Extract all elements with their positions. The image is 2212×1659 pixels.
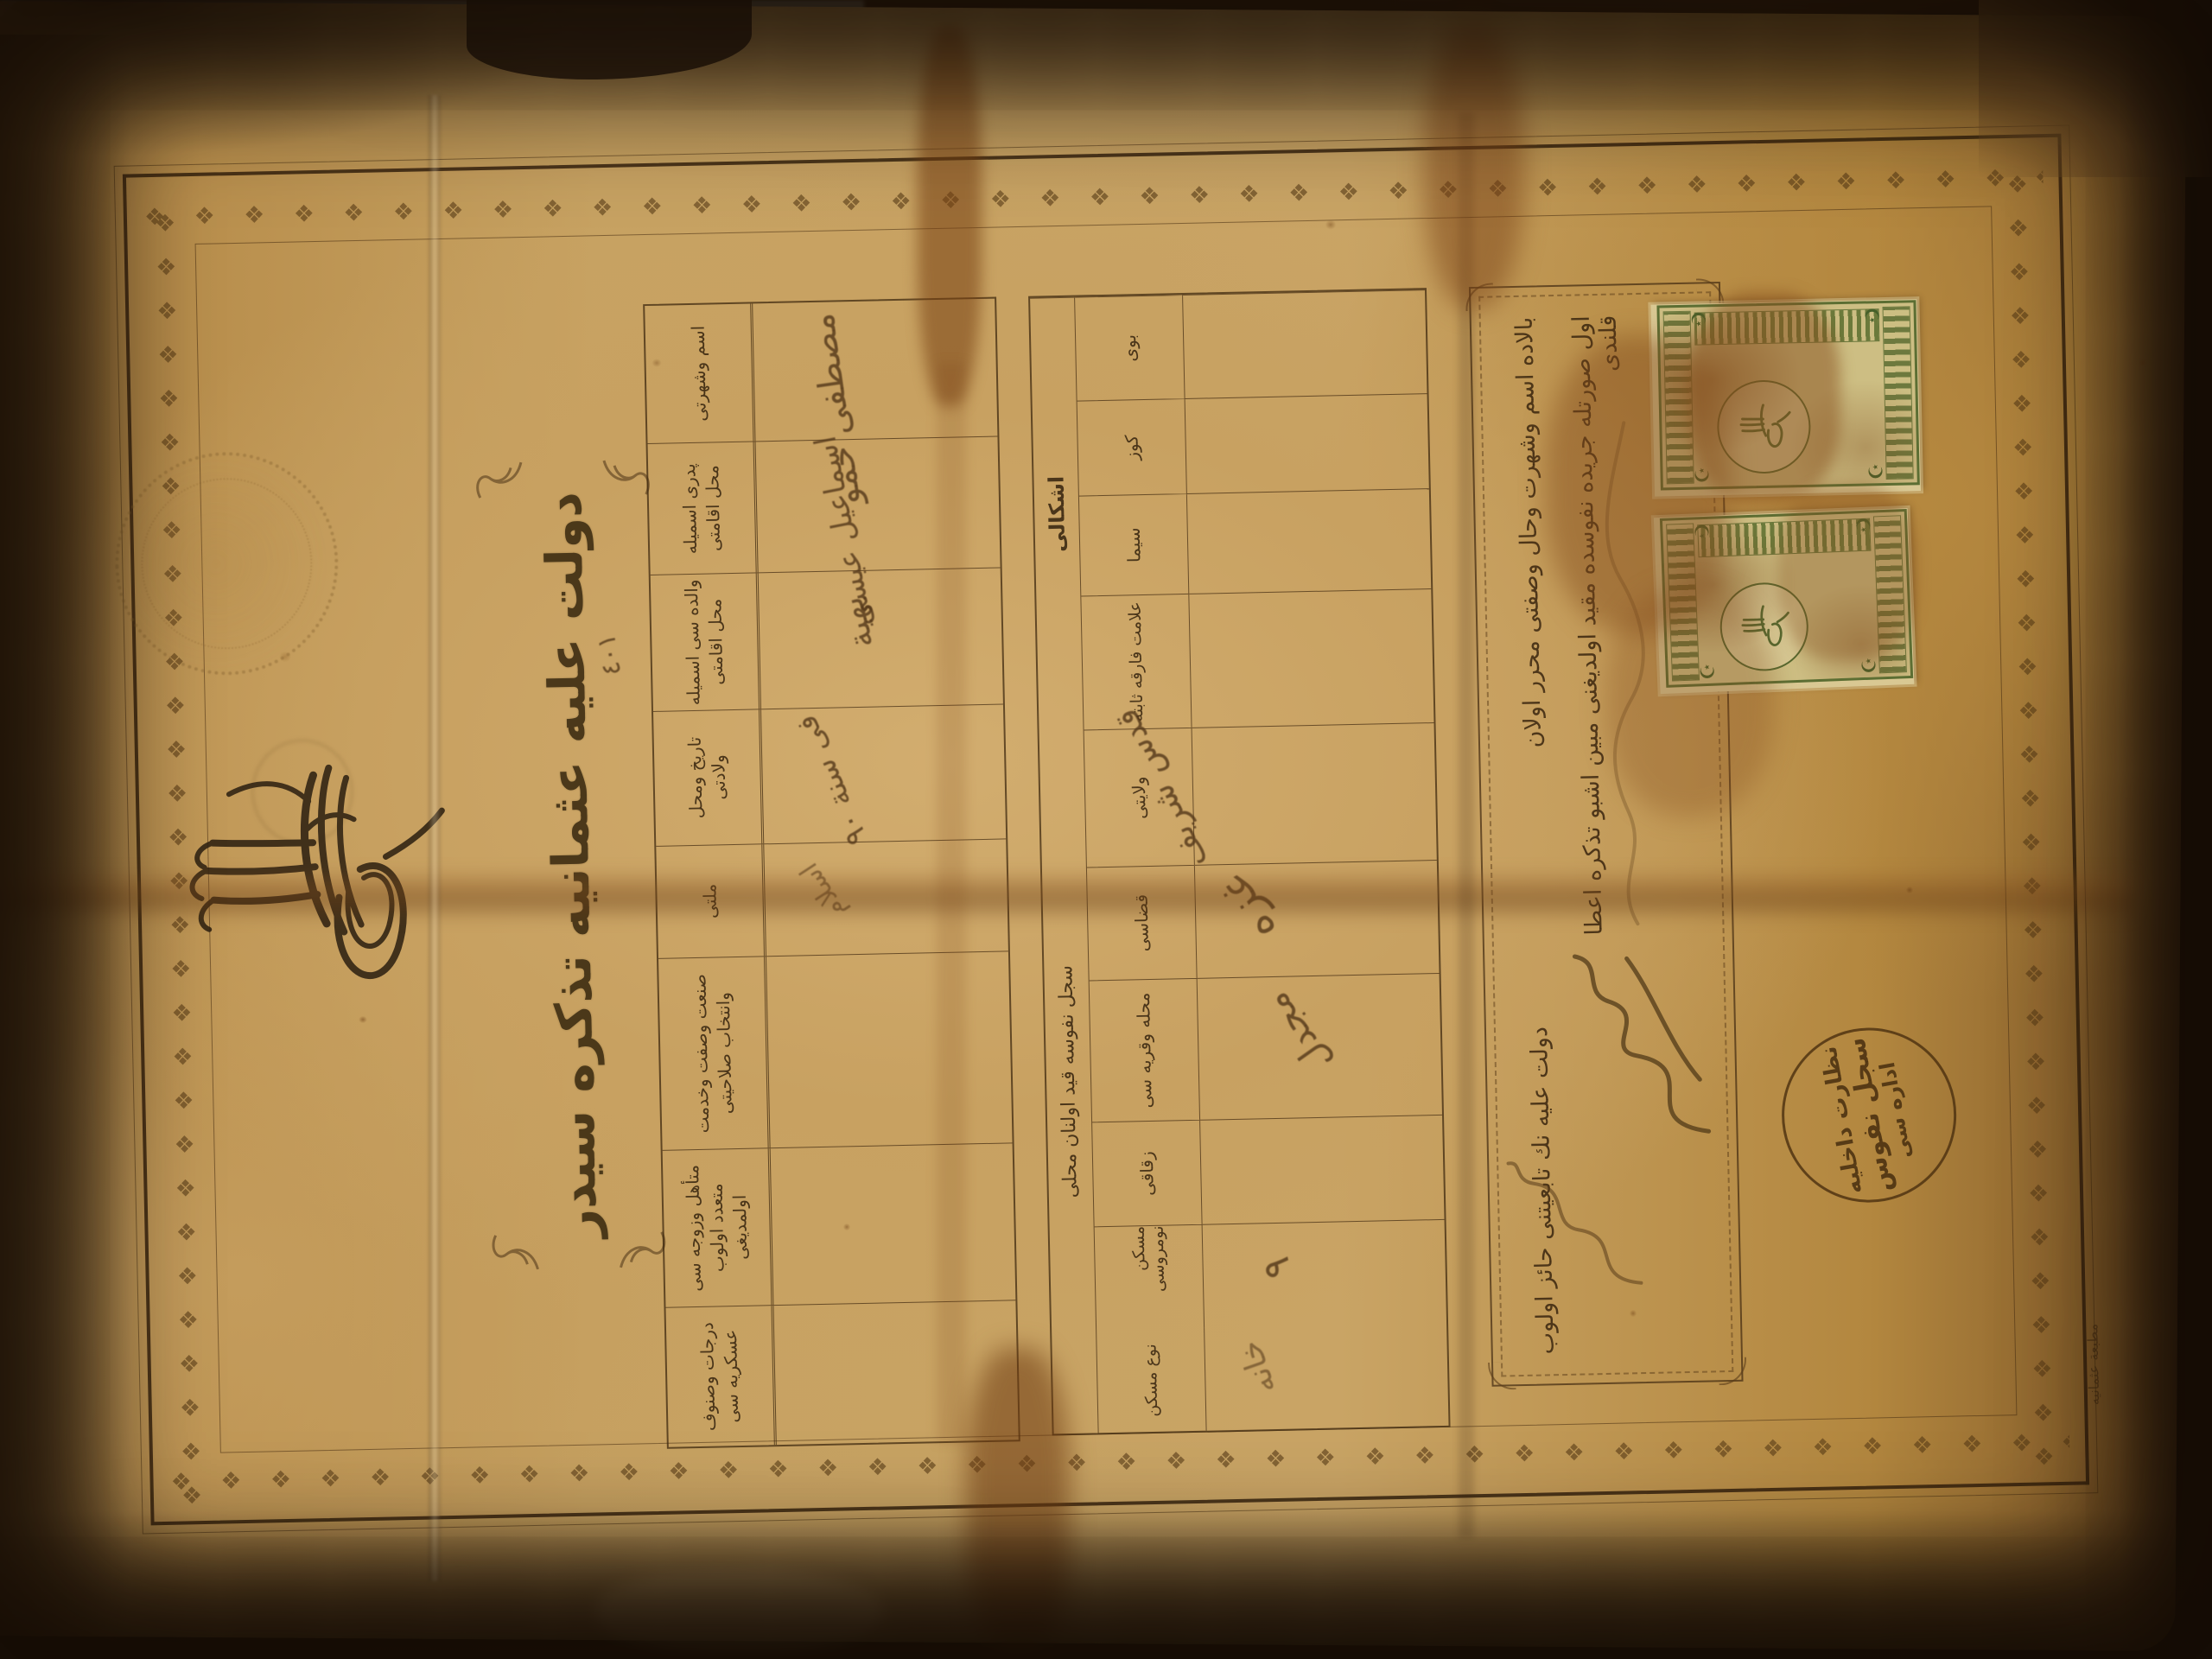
column-header: پدرى اسميله محل اقامتى xyxy=(648,442,759,575)
column-header: زقاقى xyxy=(1092,1120,1202,1226)
column-header: درجات وصنوف عسكريه سى xyxy=(665,1306,776,1447)
table-column: اسم وشهرتى مصطفى حمو xyxy=(645,299,997,444)
handwritten-entry: مجدل xyxy=(1255,984,1340,1081)
handwritten-entry: ٩ xyxy=(1254,1253,1301,1283)
column-value-cell: غزه xyxy=(1195,860,1440,977)
handwritten-entry: اسلام xyxy=(794,857,853,925)
stamp-frame: ☪ ☪ ☪ ☪ xyxy=(1656,300,1919,490)
table-column: پدرى اسميله محل اقامتى اسماعيل عيسى xyxy=(648,436,1001,575)
handwritten-entry: خانه xyxy=(1232,1336,1283,1399)
embossed-seal-inner-ring xyxy=(139,476,314,651)
value-row: قدس شريف غزه مجدل ٩ خانه xyxy=(1183,289,1448,1431)
column-header: نوع مسكن xyxy=(1096,1328,1206,1433)
statement-box-corner-ornament xyxy=(1719,1357,1747,1386)
column-header: اسم وشهرتى xyxy=(645,303,755,443)
column-header: صنعت وصفت وخدمت وانتخاب صلاحيتى xyxy=(658,957,771,1149)
column-value-cell xyxy=(773,1300,1018,1445)
column-value-cell: فى سنة ٩٠ xyxy=(761,704,1006,843)
column-header: سيما xyxy=(1079,493,1189,595)
handwritten-serial-number: ٤٠١ xyxy=(591,632,627,677)
column-value-cell: اسلام xyxy=(764,839,1008,956)
column-header: بوى xyxy=(1075,295,1185,401)
revenue-stamp-2: ☪ ☪ ☪ ☪ xyxy=(1654,508,1915,694)
table-column: متأهل وزوجه سى متعدد اولوب اولمديغى xyxy=(663,1142,1016,1306)
handwritten-entry: غزه xyxy=(1208,866,1286,950)
table-column: درجات وصنوف عسكريه سى xyxy=(665,1300,1018,1447)
ottoman-certificate: ❖ ❖ ❖ ❖ ❖ ❖ ❖ ❖ ❖ ❖ ❖ ❖ ❖ ❖ ❖ ❖ ❖ ❖ ❖ ❖ … xyxy=(80,92,2132,1568)
personal-details-table: اسم وشهرتى مصطفى حمو پدرى اسميله محل اقا… xyxy=(643,297,1020,1449)
column-header: قضاسى xyxy=(1087,865,1198,980)
title-cartouche: دولت عليه عثمانيه تذكره سيدر xyxy=(488,475,653,1254)
handwritten-name-entry xyxy=(1594,414,1657,933)
column-value-cell: اسماعيل عيسى xyxy=(756,437,1001,573)
column-value-cell xyxy=(1200,1115,1444,1224)
column-value-cell: خانه xyxy=(1205,1323,1448,1431)
handwritten-entry: فى سنة ٩٠ xyxy=(789,710,875,851)
stamp-stain xyxy=(1660,302,1917,487)
column-value-cell xyxy=(1189,588,1433,728)
column-header: محله وقريه سى xyxy=(1090,977,1200,1122)
column-value-cell xyxy=(766,951,1013,1147)
column-value-cell xyxy=(1183,289,1427,398)
statement-box-corner-ornament xyxy=(1465,283,1494,311)
table-column: ملتى اسلام xyxy=(656,838,1008,958)
printer-imprint: مطبعة عثمانيه xyxy=(2084,1324,2102,1406)
revenue-stamp-1: ☪ ☪ ☪ ☪ xyxy=(1650,299,1921,496)
column-value-cell: مصطفى حمو xyxy=(753,299,997,442)
column-header: والده سى اسميله محل اقامتى xyxy=(651,574,761,711)
table-column: والده سى اسميله محل اقامتى بهية xyxy=(651,568,1003,711)
column-value-cell: قدس شريف xyxy=(1192,722,1437,866)
column-value-cell: مجدل xyxy=(1198,973,1442,1121)
cartouche-flourish-top-right-icon xyxy=(467,455,529,517)
document-title: دولت عليه عثمانيه تذكره سيدر xyxy=(534,492,608,1239)
tughra-icon xyxy=(176,731,459,1031)
stamp-frame: ☪ ☪ ☪ ☪ xyxy=(1660,509,1913,688)
column-value-cell xyxy=(771,1143,1016,1305)
statement-box-corner-ornament xyxy=(1488,1362,1516,1390)
column-value-cell: بهية xyxy=(759,569,1003,709)
statement-box-corner-ornament xyxy=(1696,278,1725,307)
column-header: متأهل وزوجه سى متعدد اولوب اولمديغى xyxy=(663,1148,774,1307)
table-column: تاريخ ومحل ولادتى فى سنة ٩٠ xyxy=(653,703,1006,846)
column-value-cell xyxy=(1185,393,1429,493)
column-header: كوز xyxy=(1077,398,1187,496)
column-header: ملتى xyxy=(656,844,766,958)
column-value-cell xyxy=(1187,489,1431,594)
handwritten-entry: بهية xyxy=(831,594,881,653)
stamp-stain xyxy=(1662,512,1910,685)
registry-table: اشكالى سجل نفوسه قيد اولنان محلى بوى كوز… xyxy=(1028,288,1451,1435)
cartouche-flourish-top-left-icon xyxy=(483,1216,544,1277)
column-value-cell: ٩ xyxy=(1203,1219,1446,1328)
table-column: صنعت وصفت وخدمت وانتخاب صلاحيتى xyxy=(658,950,1013,1149)
column-header: مسكن نومروسى xyxy=(1095,1224,1205,1330)
column-header: تاريخ ومحل ولادتى xyxy=(653,709,764,846)
